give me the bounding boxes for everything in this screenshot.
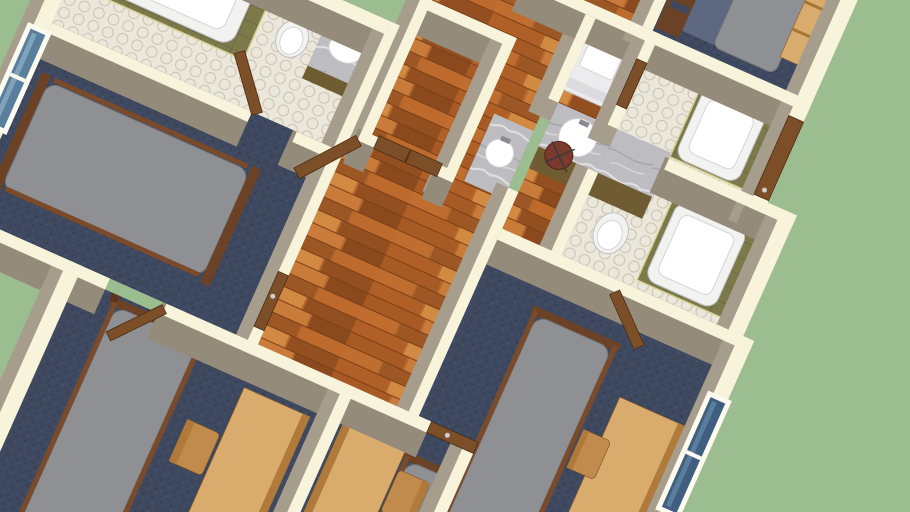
floor-plan-3d-viewport[interactable] — [0, 0, 910, 512]
